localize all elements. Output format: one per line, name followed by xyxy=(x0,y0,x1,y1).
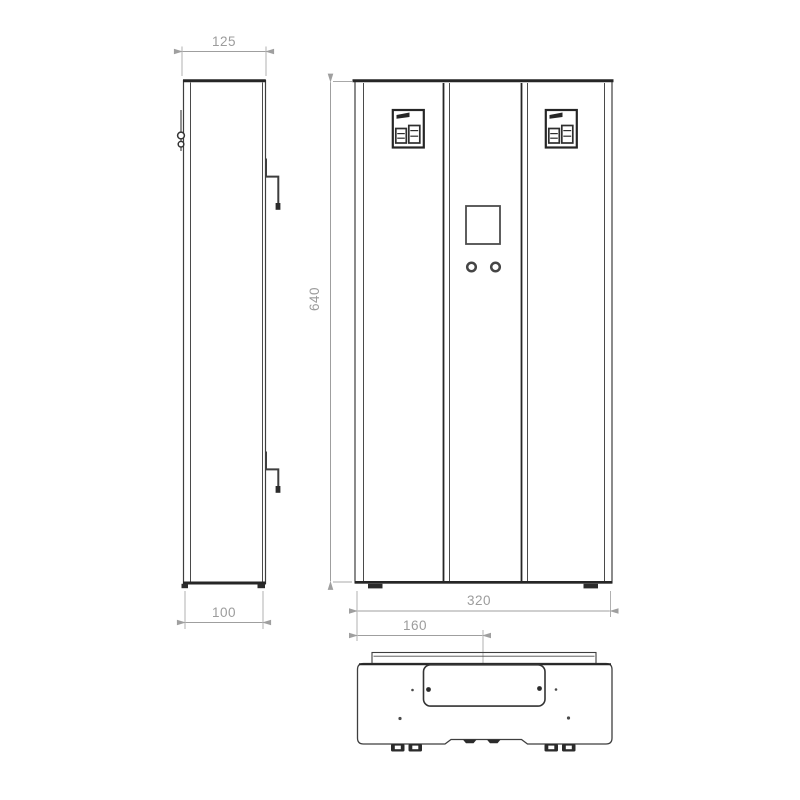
cable-gland-left xyxy=(463,740,477,743)
dimension-front-height: 640 xyxy=(307,82,352,583)
dimension-front-width: 320 xyxy=(357,591,611,641)
side-view-foot-right xyxy=(258,584,266,588)
pilot-hole xyxy=(567,716,570,719)
pipe-connectors-left xyxy=(391,744,422,752)
recess-screw-left xyxy=(426,687,431,692)
breaker-terminal xyxy=(409,126,420,144)
pilot-hole xyxy=(411,689,414,692)
hanger-screw-bottom xyxy=(178,141,184,147)
pilot-hole xyxy=(398,717,401,720)
dimension-side-width: 125 xyxy=(182,34,266,76)
circuit-breaker-left xyxy=(393,110,424,148)
dimension-side-depth: 100 xyxy=(185,591,263,629)
connection-recess xyxy=(424,665,546,706)
control-button-right xyxy=(491,263,500,272)
pilot-hole xyxy=(555,688,558,691)
dimension-label-125: 125 xyxy=(212,34,236,49)
wall-bracket-upper xyxy=(266,159,280,210)
front-view: 640 320 160 xyxy=(307,81,614,664)
dimension-label-100: 100 xyxy=(212,605,236,620)
front-view-body xyxy=(355,81,612,584)
side-view-foot-left xyxy=(182,584,189,588)
bottom-back-plate xyxy=(372,653,596,664)
side-view-body xyxy=(184,81,266,584)
dimension-label-320: 320 xyxy=(467,593,491,608)
dimension-label-160: 160 xyxy=(403,618,427,633)
side-view: 125 100 xyxy=(178,34,281,629)
hanger-screw-top xyxy=(178,132,185,139)
pipe-connectors-right xyxy=(545,744,576,752)
display-window xyxy=(466,206,500,244)
circuit-breaker-right xyxy=(546,110,577,148)
recess-screw-right xyxy=(537,686,542,691)
dimension-label-640: 640 xyxy=(307,287,322,311)
front-foot-left xyxy=(368,584,383,589)
dimension-bottom-offset: 160 xyxy=(358,618,483,664)
wall-bracket-lower xyxy=(266,452,280,493)
breaker-terminal xyxy=(562,126,573,144)
cable-gland-right xyxy=(487,740,501,743)
front-foot-right xyxy=(584,584,599,589)
breaker-terminal xyxy=(396,129,407,144)
control-button-left xyxy=(467,263,476,272)
bottom-view xyxy=(358,653,613,752)
drawing-canvas: 125 100 xyxy=(0,0,800,800)
technical-drawing: 125 100 xyxy=(0,0,800,800)
breaker-terminal xyxy=(549,129,560,144)
